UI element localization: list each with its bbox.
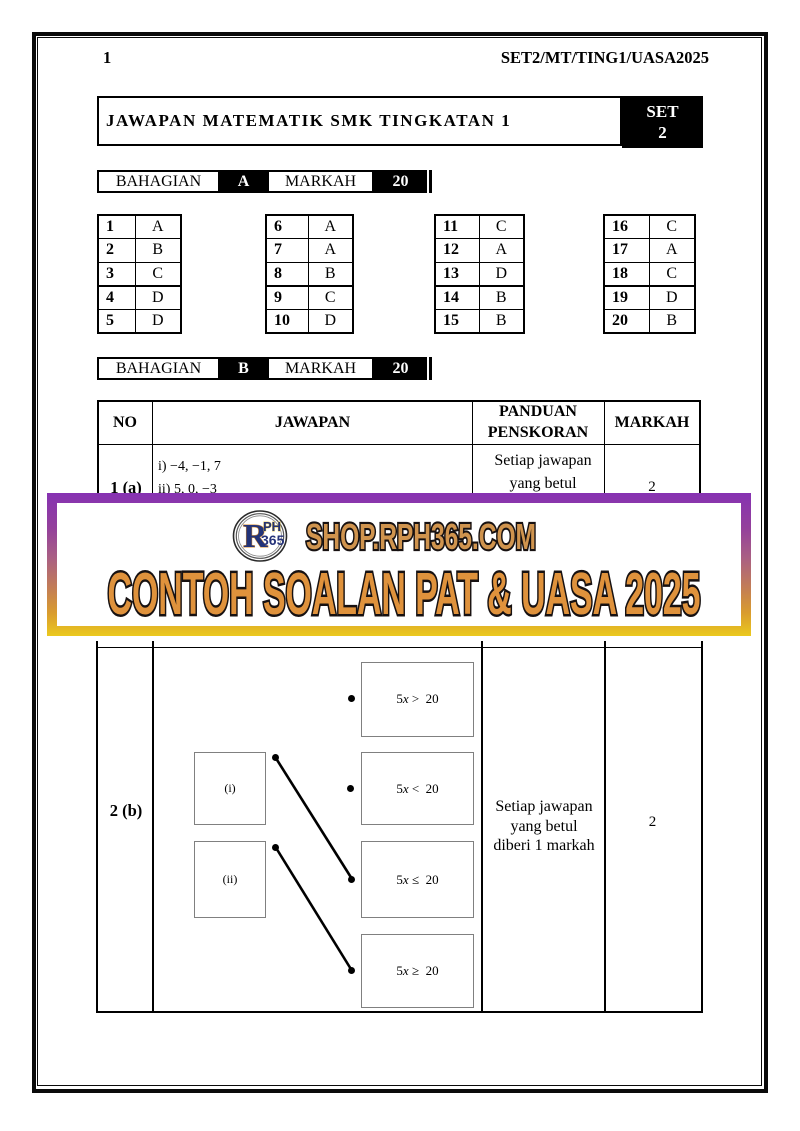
- svg-text:SHOP.RPH365.COM: SHOP.RPH365.COM: [306, 516, 536, 557]
- svg-text:CONTOH SOALAN PAT & UASA 2025: CONTOH SOALAN PAT & UASA 2025: [108, 561, 701, 627]
